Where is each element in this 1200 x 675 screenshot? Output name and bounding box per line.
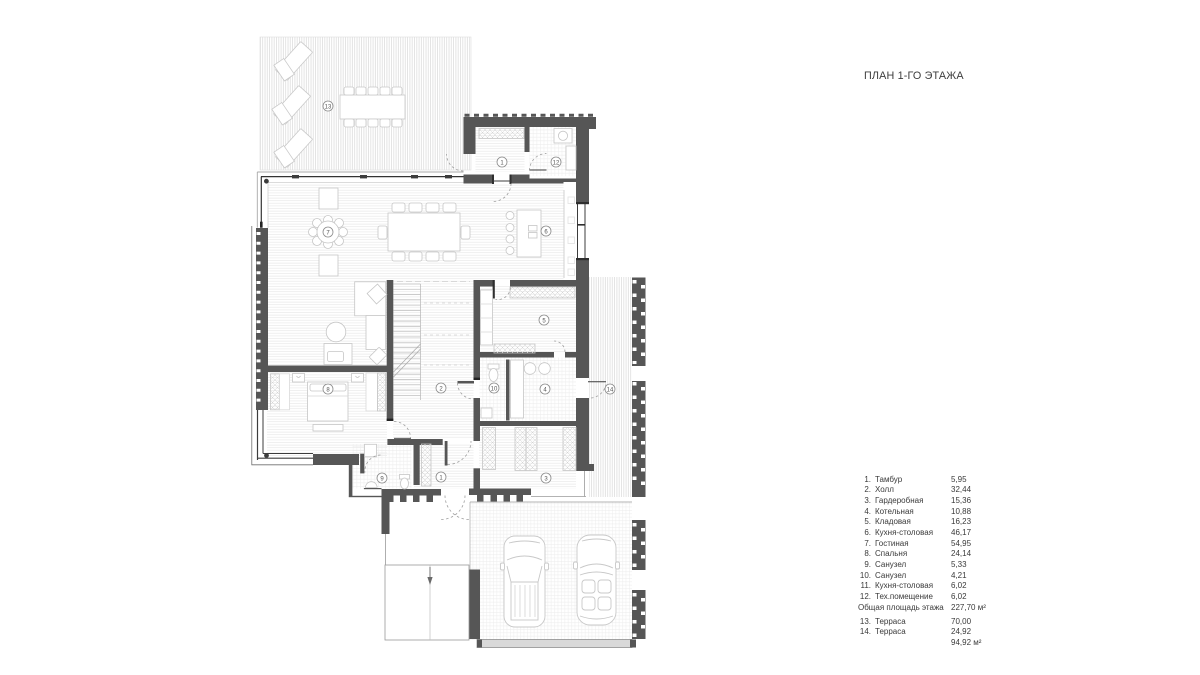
svg-text:13: 13	[325, 105, 332, 111]
svg-text:10: 10	[491, 387, 498, 393]
svg-text:12: 12	[553, 161, 560, 167]
svg-text:14: 14	[607, 388, 614, 394]
